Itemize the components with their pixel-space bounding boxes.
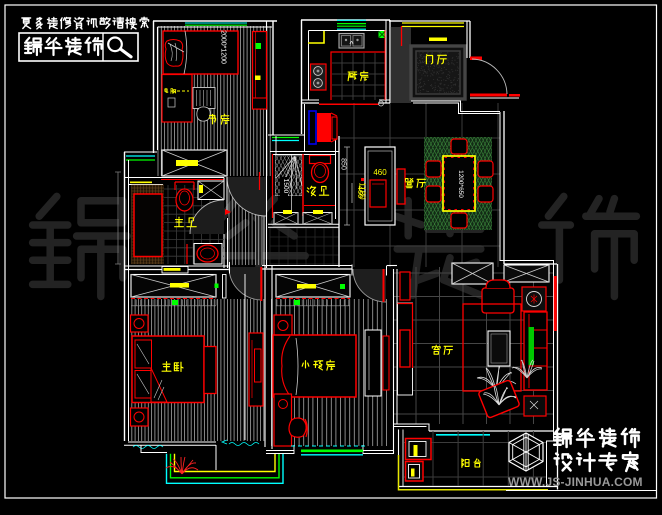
svg-text:WWW.JS-JINHUA.COM: WWW.JS-JINHUA.COM	[508, 475, 643, 489]
svg-text:850: 850	[340, 158, 347, 170]
svg-text:2000*1200: 2000*1200	[220, 30, 227, 64]
svg-text:1200*650: 1200*650	[457, 170, 464, 198]
svg-text:1500: 1500	[282, 179, 289, 194]
svg-text:460: 460	[373, 168, 387, 177]
svg-text:1180: 1180	[358, 182, 367, 200]
